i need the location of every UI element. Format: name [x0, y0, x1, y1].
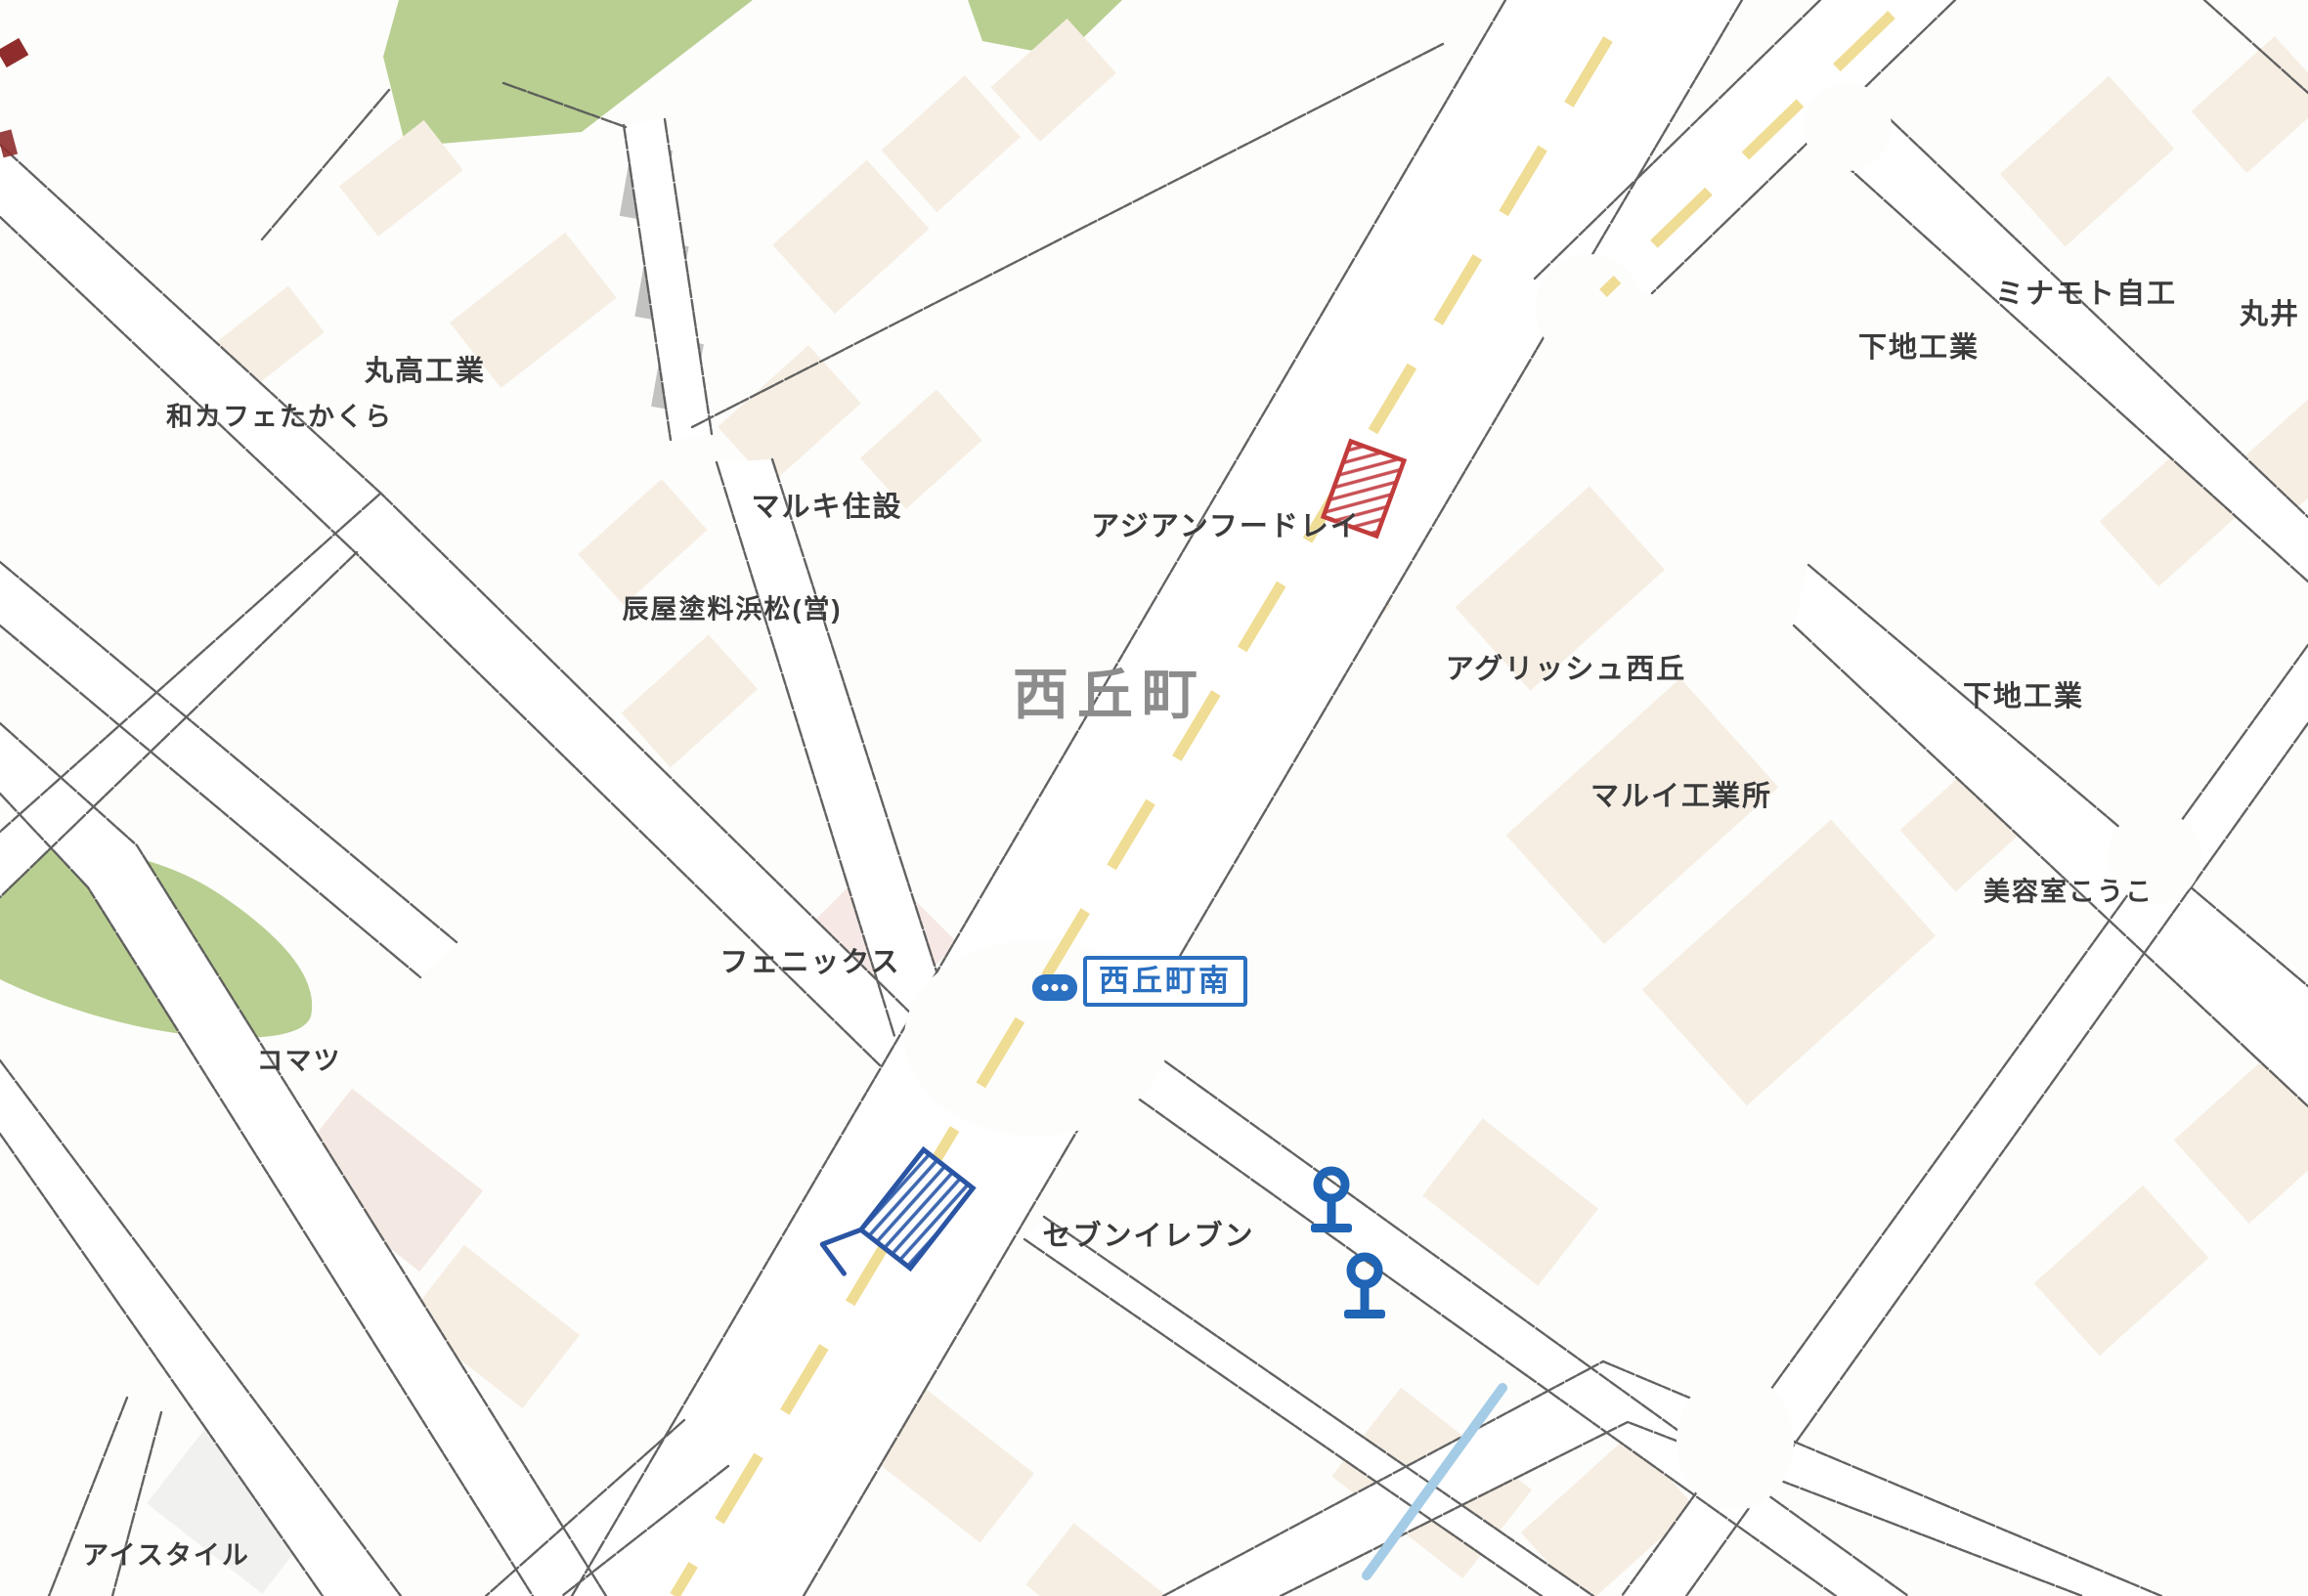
- scanned-city-map: 西丘町 丸高工業 和カフェたかくら マルキ住設 辰屋塗料浜松(営) アジアンフー…: [0, 0, 2308, 1596]
- label-tatsuya-toryo-hamamatsu: 辰屋塗料浜松(営): [623, 588, 843, 626]
- label-maruki-jusetsu: マルキ住設: [751, 484, 902, 525]
- label-shimoji-kogyo-north: 下地工業: [1858, 324, 1980, 366]
- district-name-label: 西丘町: [1013, 650, 1206, 730]
- label-biyoshitsu-koko: 美容室こうこ: [1983, 871, 2154, 909]
- label-ice-style: アイスタイル: [82, 1534, 250, 1573]
- red-edge-marks: [0, 38, 28, 158]
- bus-stop-pole-icon: [1344, 1257, 1385, 1318]
- bus-stop-name-badge: 西丘町南: [1083, 956, 1247, 1007]
- label-marutaka-kogyo: 丸高工業: [365, 348, 486, 389]
- label-komatsu: コマツ: [257, 1040, 342, 1078]
- label-marui-kogyosho: マルイ工業所: [1590, 773, 1772, 814]
- label-minamoto-jiko: ミナモト自工: [1995, 271, 2177, 312]
- map-drawing: [0, 0, 2308, 1596]
- label-shimoji-kogyo-east: 下地工業: [1963, 673, 2084, 714]
- green-area-top-left: [383, 0, 753, 147]
- label-marui: 丸井: [2240, 291, 2300, 332]
- label-asian-food-rei: アジアンフードレイ: [1091, 503, 1361, 544]
- label-phoenix: フェニックス: [719, 939, 900, 980]
- bus-icon: [1032, 974, 1077, 1001]
- label-agrish-nishioka: アグリッシュ西丘: [1446, 646, 1687, 687]
- label-seven-eleven: セブンイレブン: [1042, 1213, 1254, 1254]
- label-wa-cafe-takakura: 和カフェたかくら: [166, 396, 393, 434]
